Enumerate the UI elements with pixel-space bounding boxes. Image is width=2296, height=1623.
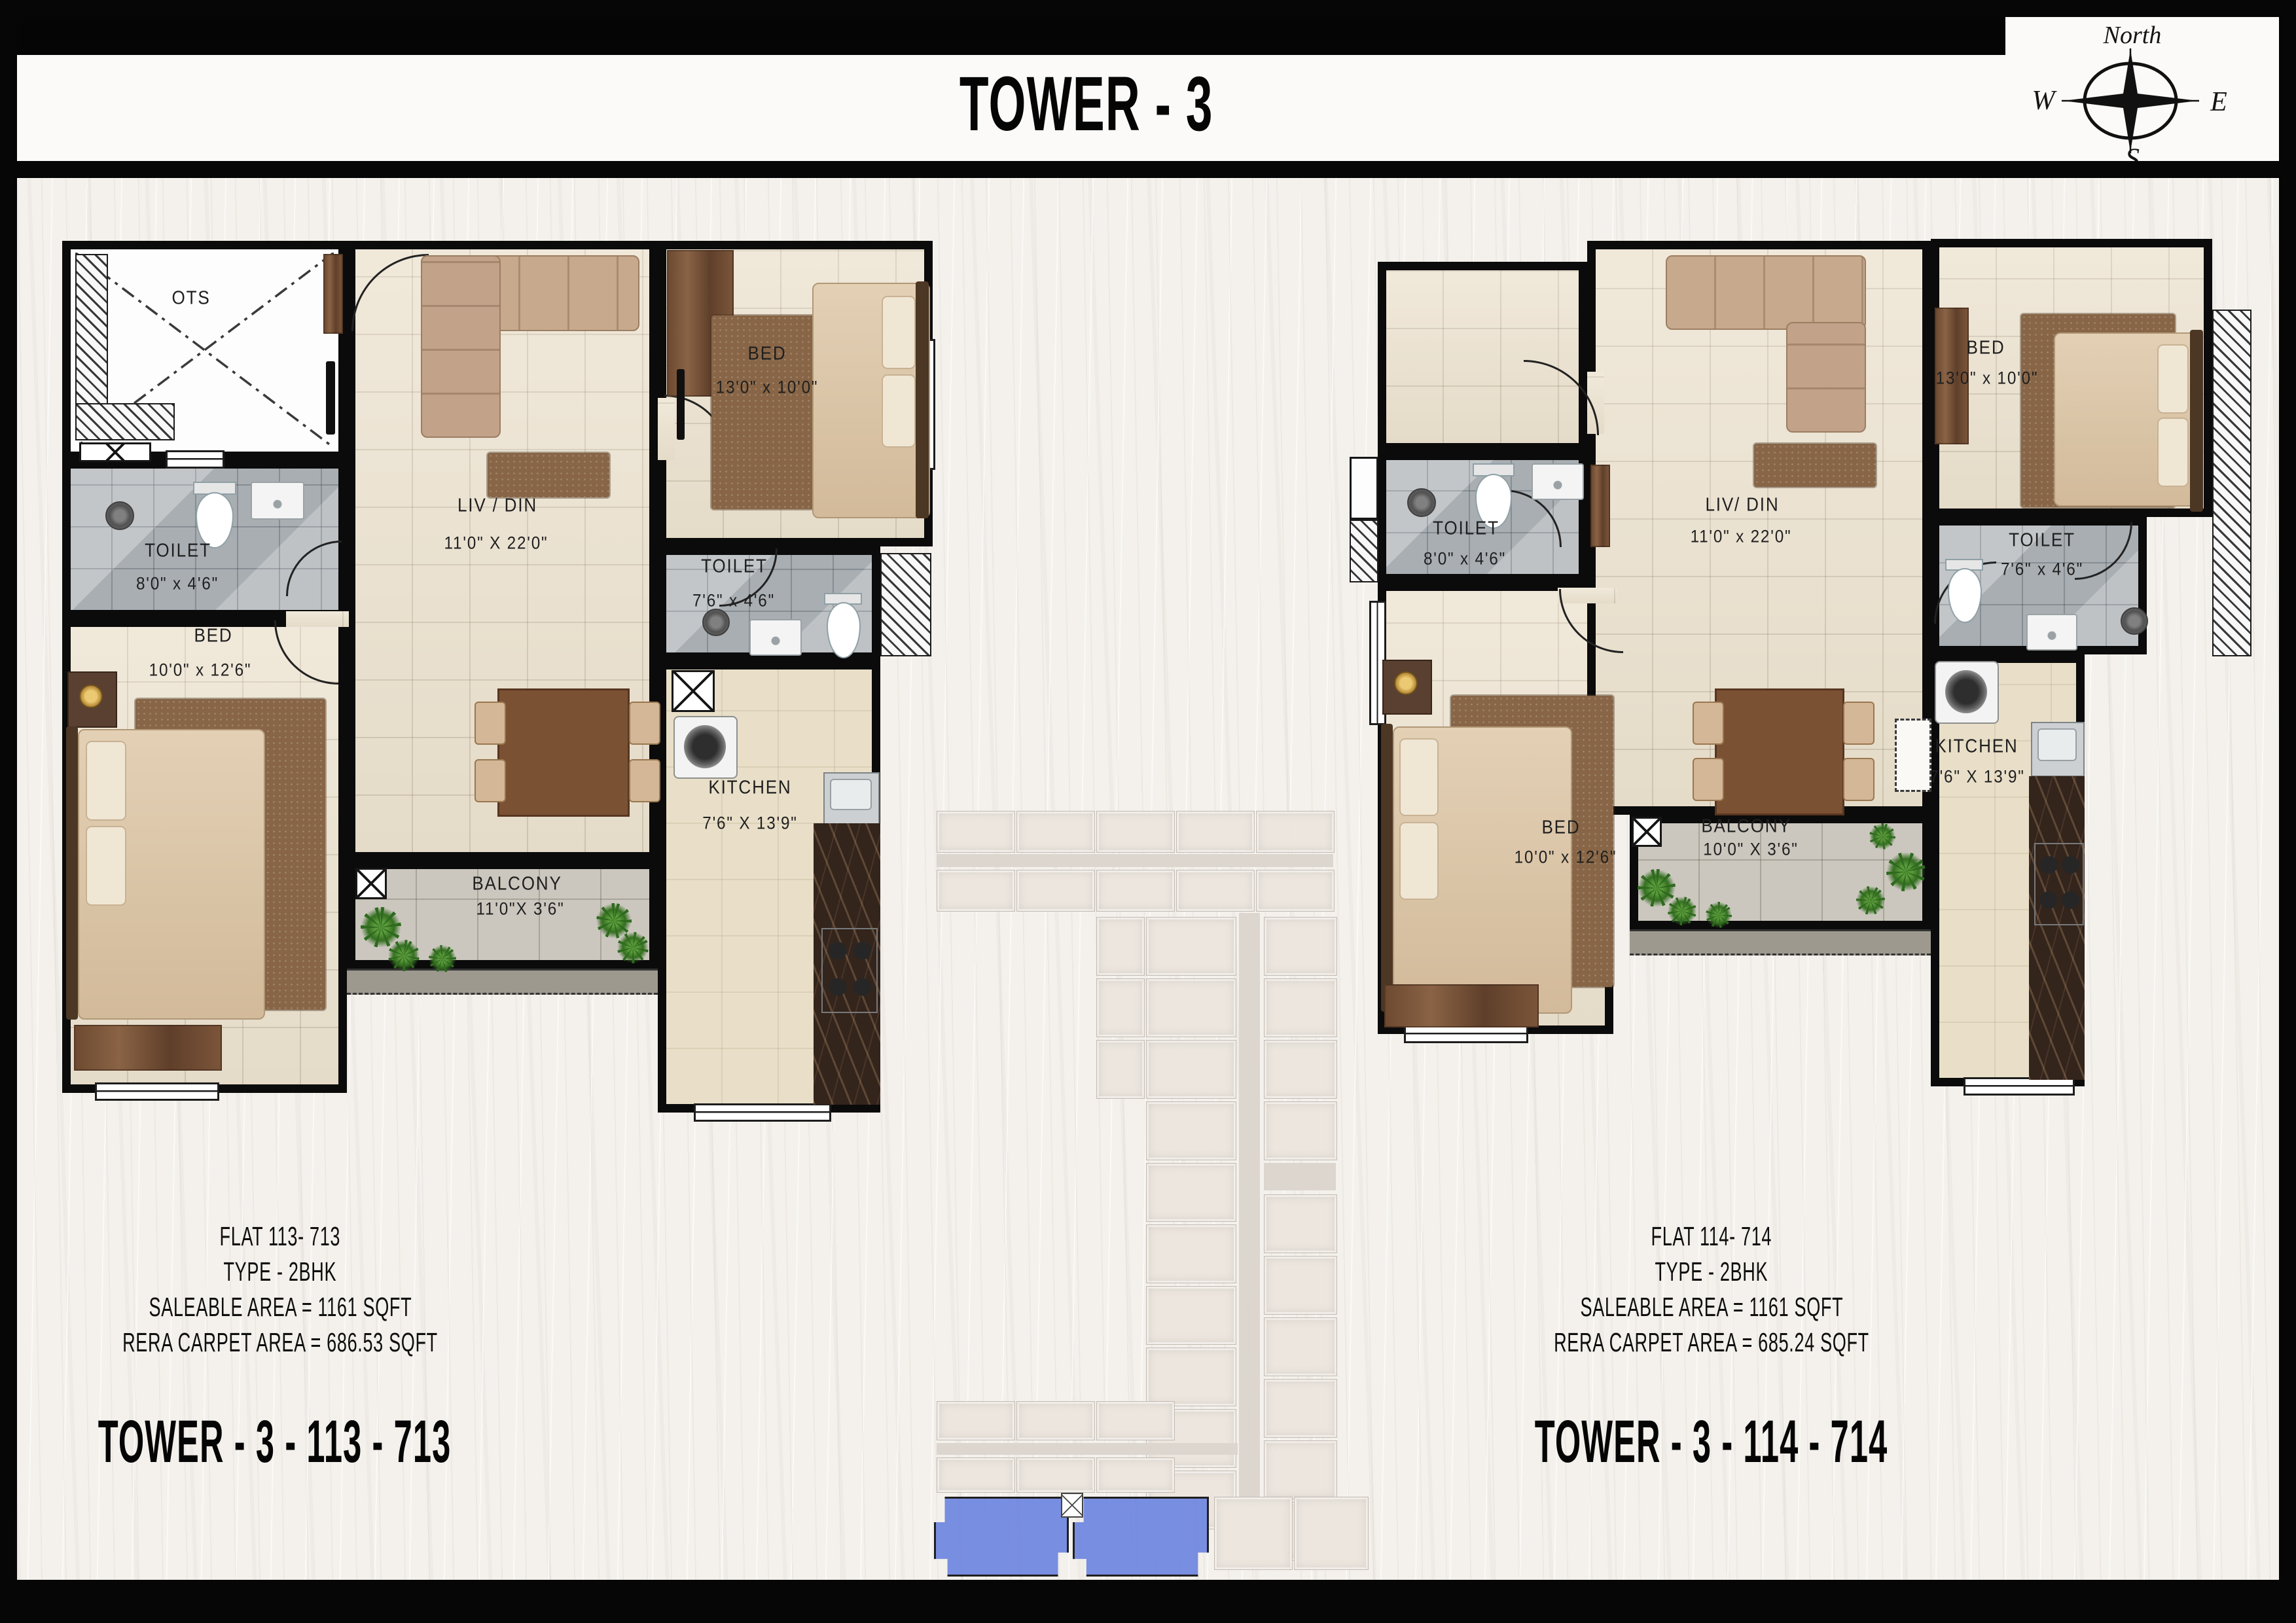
- siteplan-unit: [1146, 1163, 1236, 1222]
- siteplan-highlight-unit: [934, 1497, 1069, 1577]
- siteplan-unit: [937, 1401, 1015, 1440]
- room-label-balcony: BALCONY: [1701, 816, 1791, 838]
- tower-caption-114: TOWER - 3 - 114 - 714: [1476, 1412, 1947, 1471]
- hatched-ledge: [1350, 520, 1378, 582]
- room-label-bed1: BED: [194, 626, 232, 647]
- frame-right: [2279, 0, 2296, 1623]
- siteplan-unit: [1096, 1040, 1145, 1099]
- info-line: RERA CARPET AREA = 685.24 SQFT: [1515, 1325, 1908, 1360]
- living-rug: [488, 453, 609, 497]
- siteplan-unit: [1264, 978, 1337, 1037]
- saleable-area: SALEABLE AREA = 1161 SQFT: [1580, 1292, 1843, 1323]
- siteplan-unit: [1096, 978, 1145, 1037]
- dining-chair: [1693, 702, 1724, 745]
- window: [166, 450, 224, 469]
- room-label-toilet2: TOILET: [701, 556, 768, 578]
- room-label-kitchen: KITCHEN: [708, 777, 791, 799]
- key-plan: [933, 802, 1371, 1597]
- siteplan-unit: [1256, 811, 1335, 853]
- info-line: SALEABLE AREA = 1161 SQFT: [84, 1289, 476, 1325]
- shaft-dashed: [1895, 719, 1931, 792]
- window: [694, 1103, 831, 1122]
- poster-canvas: TOWER - 3 North W E S: [0, 0, 2296, 1623]
- room-dim-livdin: 11'0" x 22'0": [1691, 527, 1792, 547]
- saleable-area: SALEABLE AREA = 1161 SQFT: [149, 1292, 412, 1323]
- frame-left: [0, 0, 17, 1623]
- window: [1404, 1025, 1528, 1043]
- dining-chair: [1693, 758, 1724, 801]
- pillow: [882, 296, 916, 369]
- siteplan-unit: [1176, 811, 1255, 853]
- room-label-toilet1: TOILET: [145, 541, 211, 562]
- siteplan-unit: [1176, 870, 1255, 912]
- siteplan-unit: [1264, 1440, 1337, 1499]
- room-label-bed2: BED: [1966, 338, 2005, 359]
- siteplan-stair-xbox: [1061, 1493, 1083, 1518]
- dining-chair: [1843, 702, 1874, 745]
- siteplan-unit: [1264, 1256, 1337, 1315]
- siteplan-unit: [937, 811, 1015, 853]
- stove-icon: [821, 928, 878, 1013]
- plant-icon: [1638, 869, 1676, 907]
- siteplan-unit: [1096, 1401, 1175, 1440]
- shaft-xbox: [355, 868, 387, 899]
- tv-unit: [326, 361, 335, 435]
- room-dim-bed1: 10'0" x 12'6": [149, 660, 252, 681]
- sofa-chaise: [421, 255, 501, 438]
- rera-carpet-area: RERA CARPET AREA = 685.24 SQFT: [1554, 1327, 1869, 1358]
- siteplan-unit: [1264, 1101, 1337, 1160]
- flat-number: FLAT 113- 713: [220, 1221, 341, 1252]
- room-label-kitchen: KITCHEN: [1935, 736, 2018, 758]
- info-line: TYPE - 2BHK: [1515, 1254, 1908, 1289]
- info-block-flat-114: FLAT 114- 714 TYPE - 2BHK SALEABLE AREA …: [1515, 1219, 1908, 1360]
- siteplan-unit: [1264, 1194, 1337, 1253]
- dining-chair: [475, 702, 506, 745]
- siteplan-corridor: [1264, 1163, 1336, 1190]
- lamp-icon: [79, 685, 103, 708]
- siteplan-unit: [1146, 978, 1236, 1037]
- room-dim-balcony: 10'0" X 3'6": [1703, 840, 1798, 860]
- shaft-xbox: [672, 670, 715, 712]
- siteplan-unit: [1016, 1401, 1095, 1440]
- pillow: [86, 826, 126, 906]
- siteplan-unit: [1146, 1040, 1236, 1099]
- washer-drum: [684, 725, 726, 768]
- info-line: RERA CARPET AREA = 686.53 SQFT: [84, 1325, 476, 1360]
- room-dim-bed2: 13'0" x 10'0": [1936, 368, 2039, 389]
- room-dim-livdin: 11'0" X 22'0": [444, 533, 548, 554]
- compass-west-label: W: [2032, 85, 2055, 116]
- page-title: TOWER - 3: [432, 55, 1741, 153]
- siteplan-unit: [1146, 1286, 1236, 1345]
- shoe-cabinet: [323, 254, 343, 334]
- siteplan-highlight-unit: [1073, 1497, 1209, 1577]
- siteplan-corridor: [937, 854, 1333, 867]
- siteplan-unit: [1264, 1379, 1337, 1438]
- shower-icon: [702, 609, 730, 636]
- info-block-flat-113: FLAT 113- 713 TYPE - 2BHK SALEABLE AREA …: [84, 1219, 476, 1360]
- window: [1964, 1077, 2075, 1096]
- ots-hatch-wall-2: [75, 403, 175, 440]
- washbasin: [251, 482, 304, 520]
- tower-caption-text: TOWER - 3 - 113 - 713: [98, 1408, 452, 1476]
- compass-north-label: North: [2104, 21, 2162, 50]
- washing-machine-icon: [673, 716, 738, 779]
- siteplan-unit: [1146, 1101, 1236, 1160]
- siteplan-unit: [1256, 870, 1335, 912]
- room-label-bed1: BED: [1541, 817, 1580, 839]
- siteplan-unit: [1264, 1040, 1337, 1099]
- flat-type: TYPE - 2BHK: [224, 1257, 337, 1287]
- washing-machine-icon: [1935, 661, 1999, 724]
- room-dim-toilet2: 7'6" x 4'6": [692, 591, 775, 611]
- bed-headboard: [2190, 330, 2203, 512]
- sofa-furniture: [1666, 255, 1866, 330]
- bed-headboard: [916, 281, 929, 518]
- shaft: [1350, 457, 1378, 520]
- siteplan-unit: [1016, 1457, 1095, 1493]
- window: [95, 1082, 219, 1101]
- room-label-ots: OTS: [171, 288, 210, 310]
- dining-chair: [475, 759, 506, 802]
- info-line: TYPE - 2BHK: [84, 1254, 476, 1289]
- tv-unit: [677, 369, 685, 440]
- wardrobe: [1384, 984, 1539, 1027]
- pillow: [86, 741, 126, 821]
- shower-icon: [2121, 607, 2148, 635]
- shower-icon: [1407, 488, 1436, 517]
- siteplan-unit: [1146, 1347, 1236, 1406]
- siteplan-unit: [1146, 917, 1236, 976]
- room-label-livdin: LIV/ DIN: [1705, 495, 1779, 516]
- kitchen-sink: [823, 772, 880, 826]
- washer-drum: [1945, 670, 1987, 713]
- floorplan-flat-113: OTS TOILET 8'0" x 4'6" BED 10'0" x 12'6"…: [56, 234, 939, 1128]
- info-line: FLAT 114- 714: [1515, 1219, 1908, 1254]
- siteplan-unit: [1214, 1497, 1293, 1570]
- pillow: [1399, 738, 1439, 816]
- dining-chair: [1843, 758, 1874, 801]
- siteplan-unit: [1096, 1457, 1175, 1493]
- dining-table: [1715, 688, 1844, 815]
- tower-caption-113: TOWER - 3 - 113 - 713: [39, 1412, 511, 1471]
- siteplan-corridor: [1239, 913, 1260, 1505]
- room-dim-toilet2: 7'6" x 4'6": [2001, 560, 2083, 580]
- room-dim-balcony: 11'0"X 3'6": [476, 899, 564, 919]
- floorplan-flat-114: TOILET 8'0" x 4'6" BED 10'0" x 12'6" LIV…: [1342, 234, 2258, 1128]
- room-label-bed2: BED: [747, 344, 786, 365]
- flat-number: FLAT 114- 714: [1651, 1221, 1772, 1252]
- flat-type: TYPE - 2BHK: [1655, 1257, 1768, 1287]
- page-title-text: TOWER - 3: [960, 60, 1213, 149]
- hatched-ledge: [880, 553, 931, 656]
- room-dim-toilet1: 8'0" x 4'6": [136, 574, 219, 594]
- pillow: [882, 374, 916, 448]
- dining-chair: [629, 759, 660, 802]
- room-dim-kitchen: 7'6" X 13'9": [702, 813, 797, 834]
- balcony-sill: [1630, 929, 1931, 955]
- dining-chair: [629, 702, 660, 745]
- sofa-chaise: [1786, 322, 1866, 433]
- wardrobe: [74, 1025, 222, 1071]
- lamp-icon: [1394, 671, 1418, 695]
- siteplan-unit: [1264, 917, 1337, 976]
- siteplan-unit: [1016, 811, 1095, 853]
- header-rule: [17, 161, 2279, 178]
- kitchen-counter: [2029, 776, 2085, 1080]
- pillow: [1399, 822, 1439, 900]
- siteplan-corridor: [937, 1443, 1238, 1455]
- hatched-ledge: [2212, 310, 2251, 656]
- siteplan-unit: [1096, 917, 1145, 976]
- siteplan-unit: [1096, 870, 1175, 912]
- info-line: FLAT 113- 713: [84, 1219, 476, 1254]
- bed-headboard: [66, 726, 78, 1020]
- room-label-livdin: LIV / DIN: [457, 495, 537, 517]
- siteplan-unit: [1096, 811, 1175, 853]
- compass: North W E S: [2022, 21, 2245, 171]
- shoe-cabinet: [1590, 465, 1610, 547]
- room-dim-bed2: 13'0" x 10'0": [716, 378, 819, 398]
- room-dim-bed1: 10'0" x 12'6": [1515, 847, 1617, 868]
- siteplan-unit: [1294, 1497, 1369, 1570]
- siteplan-unit: [937, 1457, 1015, 1493]
- tower-caption-text: TOWER - 3 - 114 - 714: [1535, 1408, 1888, 1476]
- balcony-sill: [347, 969, 658, 995]
- compass-east-label: E: [2210, 86, 2227, 118]
- room-dim-kitchen: 7'6" X 13'9": [1929, 767, 2024, 787]
- shaft-xbox: [79, 442, 151, 462]
- shower-icon: [105, 501, 134, 530]
- room-label-toilet1: TOILET: [1433, 518, 1499, 540]
- washbasin: [2026, 614, 2077, 651]
- bed-headboard: [1381, 724, 1393, 1012]
- room-label-balcony: BALCONY: [472, 874, 562, 895]
- room-label-toilet2: TOILET: [2009, 530, 2075, 552]
- siteplan-unit: [937, 870, 1015, 912]
- sink-basin: [830, 779, 872, 810]
- dining-table: [497, 688, 630, 817]
- washbasin: [749, 619, 802, 656]
- kitchen-sink: [2031, 722, 2085, 777]
- pillow: [2157, 418, 2189, 487]
- shaft-xbox: [1632, 817, 1662, 847]
- rera-carpet-area: RERA CARPET AREA = 686.53 SQFT: [122, 1327, 438, 1358]
- washbasin: [1532, 463, 1584, 500]
- header-black-banner: [17, 17, 2005, 55]
- frame-top: [0, 0, 2296, 17]
- siteplan-unit: [1264, 1317, 1337, 1376]
- room-dim-toilet1: 8'0" x 4'6": [1424, 549, 1506, 569]
- siteplan-unit: [1146, 1224, 1236, 1283]
- stove-icon: [2034, 843, 2084, 925]
- living-rug: [1754, 444, 1876, 487]
- siteplan-unit: [1016, 870, 1095, 912]
- pillow: [2157, 344, 2189, 414]
- info-line: SALEABLE AREA = 1161 SQFT: [1515, 1289, 1908, 1325]
- sink-basin: [2037, 728, 2077, 761]
